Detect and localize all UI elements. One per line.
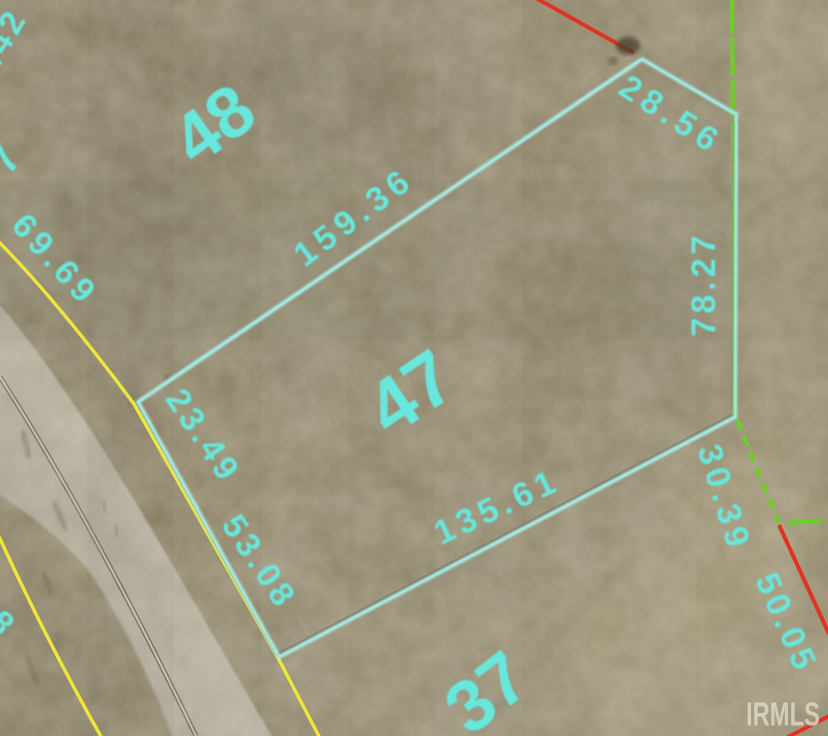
svg-text:IRMLS: IRMLS	[746, 697, 820, 734]
svg-text:78.27: 78.27	[685, 231, 723, 336]
